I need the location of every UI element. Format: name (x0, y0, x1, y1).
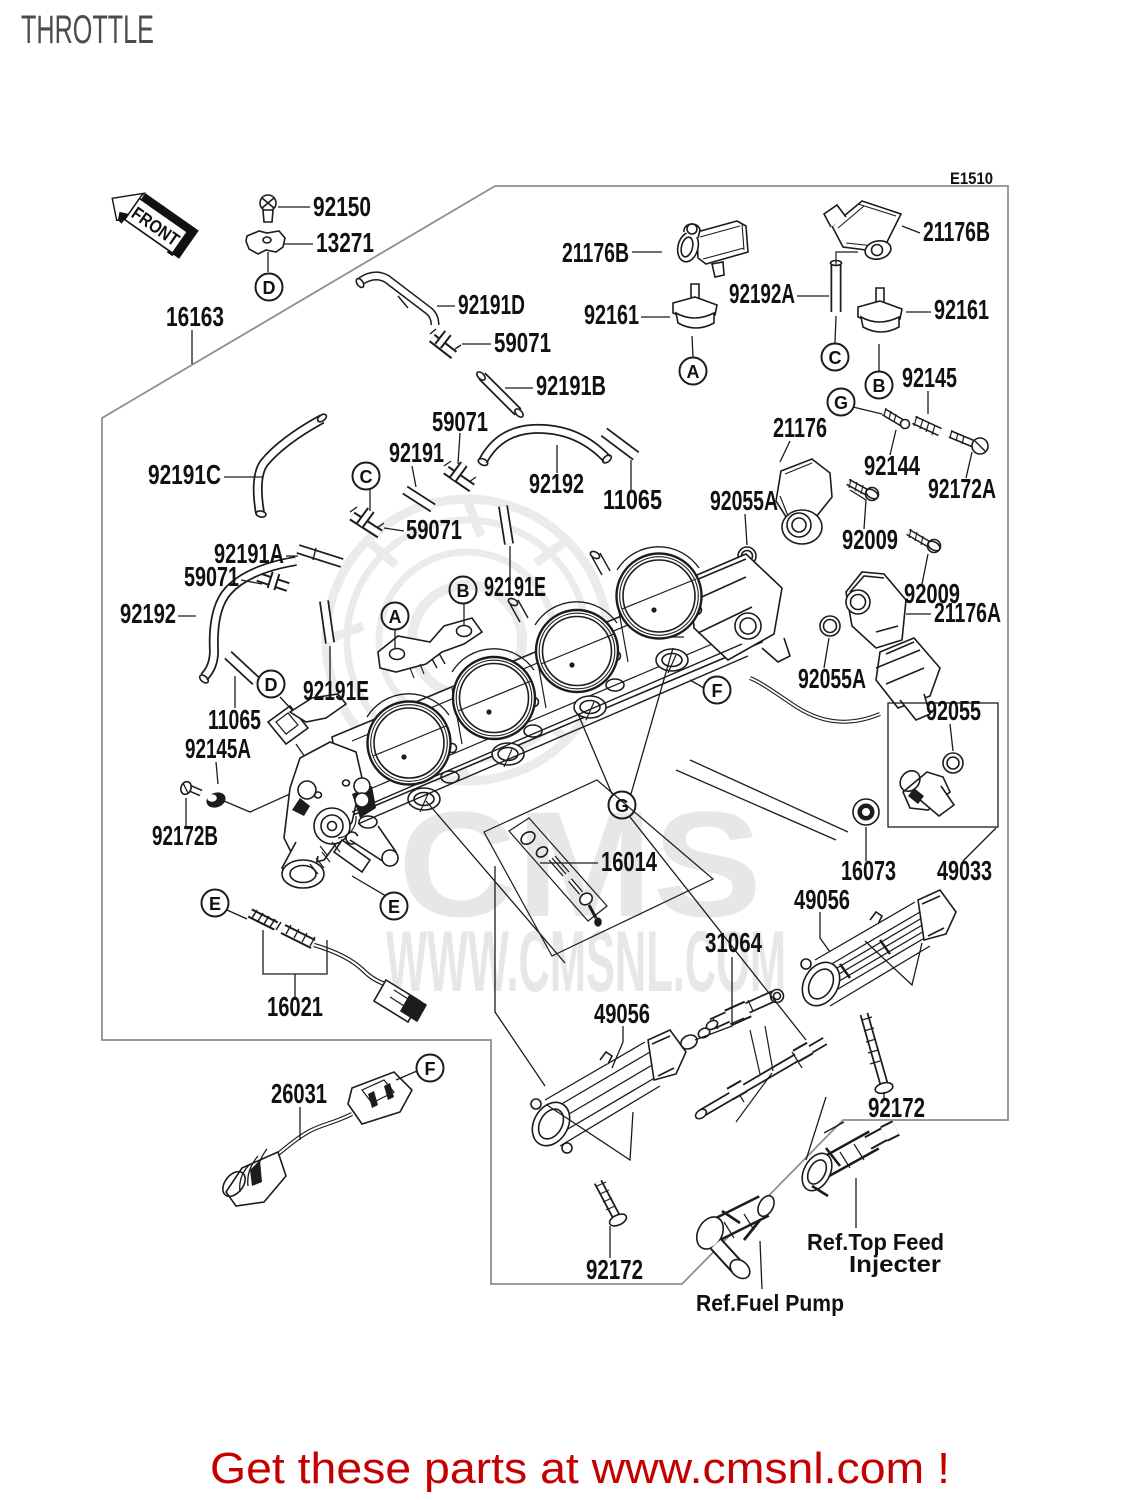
svg-text:E1510: E1510 (950, 169, 993, 188)
svg-text:D: D (263, 278, 276, 298)
svg-text:16021: 16021 (267, 991, 323, 1022)
svg-text:92191D: 92191D (458, 289, 525, 320)
svg-text:92191C: 92191C (148, 459, 221, 490)
svg-text:92161: 92161 (584, 299, 639, 330)
svg-text:92191E: 92191E (303, 675, 369, 706)
svg-text:92055: 92055 (926, 695, 981, 726)
svg-text:92055A: 92055A (798, 663, 866, 694)
svg-text:G: G (615, 796, 629, 816)
svg-text:92172: 92172 (868, 1092, 925, 1123)
svg-text:21176A: 21176A (934, 597, 1001, 628)
svg-text:49056: 49056 (594, 998, 650, 1029)
svg-text:Ref.Fuel Pump: Ref.Fuel Pump (696, 1290, 844, 1316)
svg-text:11065: 11065 (208, 704, 261, 735)
svg-text:C: C (360, 467, 373, 487)
svg-text:59071: 59071 (432, 406, 488, 437)
svg-text:Get these parts at www.cmsnl.c: Get these parts at www.cmsnl.com ! (210, 1444, 950, 1493)
svg-text:E: E (388, 897, 400, 917)
svg-text:B: B (457, 581, 470, 601)
svg-text:92150: 92150 (313, 191, 371, 222)
svg-text:Injecter: Injecter (849, 1251, 941, 1277)
svg-text:16163: 16163 (166, 301, 224, 332)
svg-text:B: B (873, 376, 886, 396)
svg-text:92191B: 92191B (536, 370, 606, 401)
svg-text:F: F (425, 1059, 436, 1079)
svg-text:THROTTLE: THROTTLE (21, 8, 154, 52)
svg-text:F: F (712, 681, 723, 701)
svg-text:92009: 92009 (842, 524, 898, 555)
svg-text:49056: 49056 (794, 884, 850, 915)
svg-text:21176: 21176 (773, 412, 827, 443)
svg-text:D: D (265, 675, 278, 695)
svg-text:92191E: 92191E (484, 571, 546, 602)
svg-text:13271: 13271 (316, 227, 374, 258)
svg-text:16014: 16014 (601, 846, 657, 877)
svg-text:92144: 92144 (864, 450, 920, 481)
svg-text:92192: 92192 (529, 468, 584, 499)
svg-text:16073: 16073 (841, 855, 896, 886)
svg-text:A: A (687, 362, 700, 382)
svg-text:C: C (829, 348, 842, 368)
svg-text:92191: 92191 (389, 437, 444, 468)
svg-text:11065: 11065 (603, 484, 662, 515)
svg-text:92192: 92192 (120, 598, 176, 629)
svg-text:21176B: 21176B (923, 216, 990, 247)
svg-text:92172B: 92172B (152, 820, 218, 851)
svg-text:E: E (209, 894, 221, 914)
svg-text:31064: 31064 (705, 927, 762, 958)
svg-text:59071: 59071 (406, 514, 462, 545)
svg-text:59071: 59071 (494, 327, 551, 358)
svg-text:G: G (834, 393, 848, 413)
svg-text:26031: 26031 (271, 1078, 327, 1109)
svg-text:92145: 92145 (902, 362, 957, 393)
svg-text:92172: 92172 (586, 1254, 643, 1285)
svg-text:49033: 49033 (937, 855, 992, 886)
svg-text:21176B: 21176B (562, 237, 629, 268)
svg-text:92192A: 92192A (729, 278, 795, 309)
svg-text:92161: 92161 (934, 294, 989, 325)
svg-text:92145A: 92145A (185, 733, 251, 764)
svg-text:A: A (389, 607, 402, 627)
svg-text:92055A: 92055A (710, 485, 778, 516)
svg-text:92172A: 92172A (928, 473, 996, 504)
svg-text:59071: 59071 (184, 561, 239, 592)
